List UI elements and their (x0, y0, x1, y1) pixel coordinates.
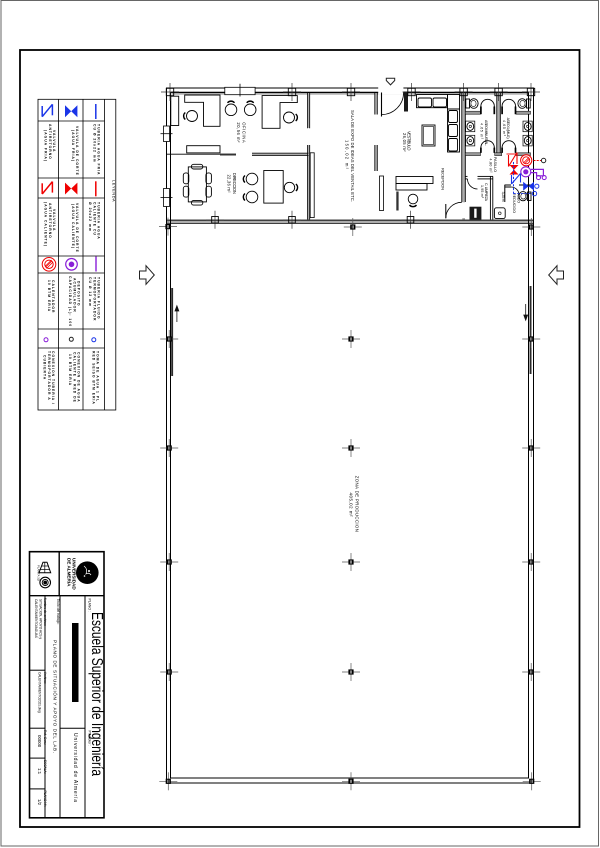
svg-text:(AGUA FRIA): (AGUA FRIA) (71, 130, 75, 162)
svg-text:(AGUA FRIA): (AGUA FRIA) (44, 130, 48, 162)
svg-text:LEYENDA: LEYENDA (111, 180, 116, 202)
svg-text:26,05 m²: 26,05 m² (402, 133, 407, 152)
svg-text:PLANO Nº:: PLANO Nº: (43, 791, 47, 807)
svg-text:4,65 m²: 4,65 m² (480, 123, 484, 140)
svg-text:CAPACIDAD (L): 100: CAPACIDAD (L): 100 (68, 276, 72, 327)
svg-text:150,02 m²: 150,02 m² (344, 140, 349, 170)
svg-text:RED SEISO BTM ERIA: RED SEISO BTM ERIA (91, 351, 95, 405)
svg-text:(AGUA CALIENTE): (AGUA CALIENTE) (44, 202, 48, 247)
svg-text:10 BTM ERIA: 10 BTM ERIA (68, 354, 72, 386)
svg-text:Titulo del trabajo:: Titulo del trabajo: (56, 599, 60, 625)
svg-text:Archivo:: Archivo: (43, 672, 47, 684)
svg-text:20,56 m²: 20,56 m² (236, 122, 241, 143)
svg-text:CU Ø 20x22 mm: CU Ø 20x22 mm (92, 124, 96, 163)
svg-text:CALENTAMIENTO2021.dwg: CALENTAMIENTO2021.dwg (38, 672, 42, 713)
svg-text:Universidad de Almería: Universidad de Almería (72, 733, 78, 802)
svg-text:10 BTM ERIA: 10 BTM ERIA (47, 280, 51, 312)
svg-text:22,36 m²: 22,36 m² (226, 175, 231, 194)
svg-text:PLANTA 3D: PLANTA 3D (37, 565, 41, 582)
svg-text:4,65 m²: 4,65 m² (502, 120, 506, 137)
svg-text:ZONA DE PRODUCCION: ZONA DE PRODUCCION (354, 476, 359, 532)
svg-text:CU Ø 12 mm: CU Ø 12 mm (88, 277, 92, 307)
svg-text:SALA DE EXPO DE IDEAS DEL VENT: SALA DE EXPO DE IDEAS DEL VENTAIL ETC. (350, 110, 355, 202)
svg-text:Promotor :: Promotor : (87, 731, 91, 747)
svg-text:PLANO DE SITUACIÓN Y APOYO DEL: PLANO DE SITUACIÓN Y APOYO DEL LAB. (53, 640, 59, 753)
svg-text:4,80 m²: 4,80 m² (489, 159, 493, 174)
svg-text:OFICINA: OFICINA (242, 122, 247, 143)
svg-text:(AGUA CALIENTE): (AGUA CALIENTE) (71, 204, 75, 249)
svg-text:CALENTAMIENTO/AGUAS: CALENTAMIENTO/AGUAS (34, 599, 38, 638)
svg-text:ESCALA:: ESCALA: (43, 760, 47, 774)
svg-text:PLANO :: PLANO : (87, 599, 91, 612)
svg-text:Ref. Gen.:: Ref. Gen.: (43, 730, 47, 745)
svg-text:405,02 m²: 405,02 m² (349, 493, 354, 518)
svg-text:RECEPCION: RECEPCION (441, 168, 446, 190)
svg-text:1:1: 1:1 (37, 768, 42, 775)
svg-text:1,95 m²: 1,95 m² (480, 185, 484, 199)
svg-text:CUBIERTA: CUBIERTA (43, 355, 47, 380)
svg-text:1/2: 1/2 (37, 799, 42, 806)
svg-text:DE ALMERÍA: DE ALMERÍA (67, 558, 74, 587)
svg-text:REDUCIDO: REDUCIDO (512, 193, 516, 213)
svg-text:Escuela Superior de Ingeniería: Escuela Superior de Ingeniería (88, 612, 105, 776)
svg-text:DIRECCION: DIRECCION (232, 173, 237, 194)
svg-text:00000: 00000 (37, 735, 42, 748)
svg-text:Ø 20x22 mm: Ø 20x22 mm (88, 202, 92, 232)
svg-text:3,25 m: 3,25 m (501, 192, 505, 202)
